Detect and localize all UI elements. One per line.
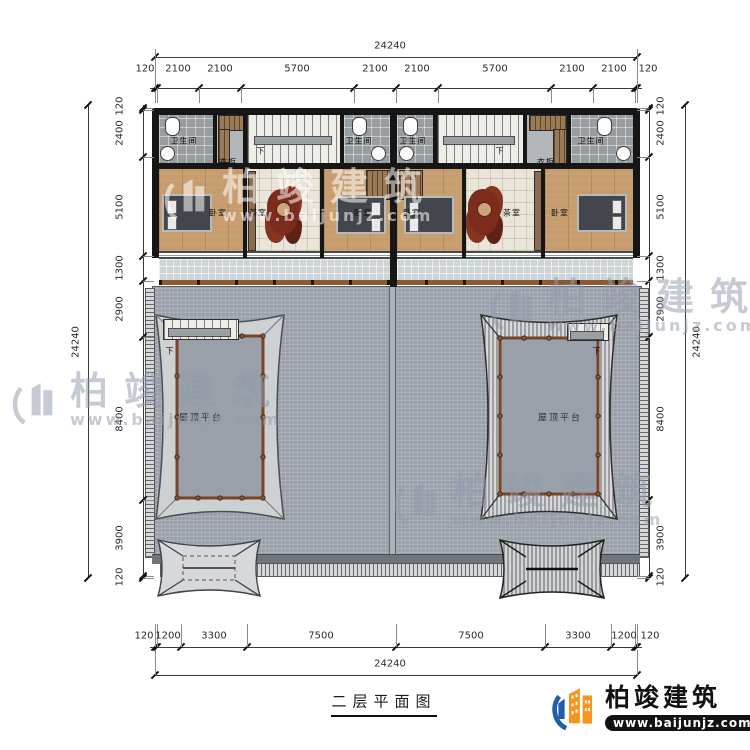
wall-segment: [340, 114, 344, 164]
dimension-label: 2400: [656, 120, 667, 145]
wall-segment: [243, 114, 247, 164]
dimension-label: 2100: [165, 64, 190, 75]
dimension-line: [88, 105, 89, 578]
extension-line: [637, 110, 650, 111]
dimension-label: 120: [656, 96, 667, 115]
left-terrace-label: 屋顶平台: [179, 411, 223, 424]
title-underline: [331, 715, 437, 717]
right-terrace-stair: [567, 323, 609, 341]
dimension-label: 5700: [284, 64, 309, 75]
dimension-label: 2100: [362, 64, 387, 75]
right-terrace-down-label: 下: [593, 346, 602, 357]
wall-segment: [243, 169, 247, 252]
floor-plan-sheet: 1202100210057002100210057002100210012012…: [0, 0, 750, 750]
dimension-line: [155, 675, 637, 676]
bathroom-4-label: 卫生间: [578, 136, 605, 147]
dimension-label: 120: [115, 567, 126, 586]
wardrobe-1-label: 衣柜: [219, 157, 237, 168]
wall-segment: [462, 169, 466, 252]
dimension-label: 120: [638, 64, 657, 75]
bathroom-2-label: 卫生间: [346, 136, 373, 147]
dimension-line: [649, 105, 650, 578]
extension-line: [157, 88, 158, 103]
wall-segment: [433, 114, 437, 164]
dimension-label: 8400: [656, 406, 667, 431]
wall-segment: [390, 108, 397, 287]
brand-logo-icon: [549, 682, 599, 734]
dimension-label: 24240: [374, 41, 406, 52]
extension-line: [199, 88, 200, 103]
left-terrace-down-label: 下: [166, 346, 175, 357]
dimension-line: [143, 105, 144, 578]
dimension-label: 2400: [115, 120, 126, 145]
dimension-label: 120: [115, 96, 126, 115]
dimension-label: 1300: [115, 255, 126, 280]
dimension-tick: [681, 574, 689, 582]
extension-line: [247, 624, 248, 647]
wardrobe-2-label: 衣柜: [537, 157, 555, 168]
extension-line: [637, 650, 638, 675]
bedroom-2-label: 卧室: [354, 208, 372, 219]
dimension-label: 8400: [115, 406, 126, 431]
stair-left-down-label: 下: [257, 146, 266, 157]
dimension-label: 5100: [115, 194, 126, 219]
dimension-label: 5700: [482, 64, 507, 75]
extension-line: [143, 110, 154, 111]
wall-segment: [462, 249, 466, 258]
wall-segment: [633, 108, 640, 258]
dimension-label: 2100: [404, 64, 429, 75]
dimension-label: 7500: [308, 631, 333, 642]
dimension-label: 120: [135, 64, 154, 75]
extension-line: [396, 88, 397, 103]
left-terrace-stair: [163, 319, 239, 340]
tearoom-2-label: 茶室: [503, 208, 521, 219]
extension-line: [637, 337, 650, 338]
dimension-label: 3900: [115, 525, 126, 550]
dimension-label: 7500: [458, 631, 483, 642]
dimension-label: 2900: [656, 296, 667, 321]
dimension-label: 2100: [207, 64, 232, 75]
extension-line: [396, 624, 397, 647]
extension-line: [143, 578, 154, 579]
extension-line: [143, 281, 154, 282]
dimension-label: 2900: [115, 296, 126, 321]
bathroom-3-label: 卫生间: [400, 136, 427, 147]
tearoom-1-label: 茶室: [249, 208, 267, 219]
dimension-label: 120: [134, 631, 153, 642]
right-gate-canopy-roof: [499, 539, 605, 599]
brand-name: 柏竣建筑: [605, 685, 750, 711]
left-gate-canopy-roof: [157, 539, 261, 597]
extension-line: [551, 88, 552, 103]
extension-line: [593, 88, 594, 103]
extension-line: [545, 624, 546, 647]
wall-segment: [320, 249, 324, 258]
brand-logo: 柏竣建筑 www.baijunjz.com: [549, 682, 750, 734]
extension-line: [155, 49, 156, 88]
extension-line: [155, 650, 156, 675]
dimension-label: 24240: [71, 326, 82, 358]
dimension-label: 3900: [656, 525, 667, 550]
dimension-label: 1300: [656, 255, 667, 280]
dimension-label: 1200: [611, 631, 636, 642]
extension-line: [637, 500, 650, 501]
extension-line: [637, 256, 650, 257]
extension-line: [354, 88, 355, 103]
dimension-tick: [84, 574, 92, 582]
wall-segment: [567, 114, 571, 164]
bedroom-3-label: 卧室: [403, 208, 421, 219]
extension-line: [241, 88, 242, 103]
extension-line: [143, 256, 154, 257]
wall-segment: [243, 249, 247, 258]
bedroom-1-label: 卧室: [209, 208, 227, 219]
extension-line: [143, 157, 154, 158]
extension-line: [637, 578, 650, 579]
extension-line: [637, 88, 638, 103]
extension-line: [438, 88, 439, 103]
dimension-label: 24240: [374, 659, 406, 670]
dimension-label: 120: [640, 631, 659, 642]
dimension-label: 3300: [201, 631, 226, 642]
dimension-label: 2100: [601, 64, 626, 75]
dimension-label: 3300: [565, 631, 590, 642]
extension-line: [143, 337, 154, 338]
stair-right-down-label: 下: [496, 146, 505, 157]
wall-segment: [213, 114, 217, 164]
wall-segment: [152, 108, 159, 258]
wall-segment: [523, 114, 527, 164]
extension-line: [637, 157, 650, 158]
extension-line: [181, 624, 182, 647]
extension-line: [143, 500, 154, 501]
dimension-label: 5100: [656, 194, 667, 219]
wall-segment: [320, 169, 324, 252]
bathroom-1-label: 卫生间: [171, 136, 198, 147]
extension-line: [637, 281, 650, 282]
wall-segment: [541, 249, 545, 258]
dimension-label: 2100: [559, 64, 584, 75]
drawing-title: 二层平面图: [331, 691, 436, 712]
dimension-line: [685, 105, 686, 578]
dimension-label: 1200: [155, 631, 180, 642]
generated-graphics-layer: 1202100210057002100210057002100210012012…: [0, 0, 750, 750]
extension-line: [637, 624, 638, 647]
dimension-label: 120: [656, 567, 667, 586]
brand-url: www.baijunjz.com: [605, 715, 750, 731]
dimension-line: [155, 57, 637, 58]
wall-segment: [541, 169, 545, 252]
right-terrace-label: 屋顶平台: [538, 411, 582, 424]
dimension-label: 24240: [692, 326, 703, 358]
bedroom-4-label: 卧室: [551, 208, 569, 219]
